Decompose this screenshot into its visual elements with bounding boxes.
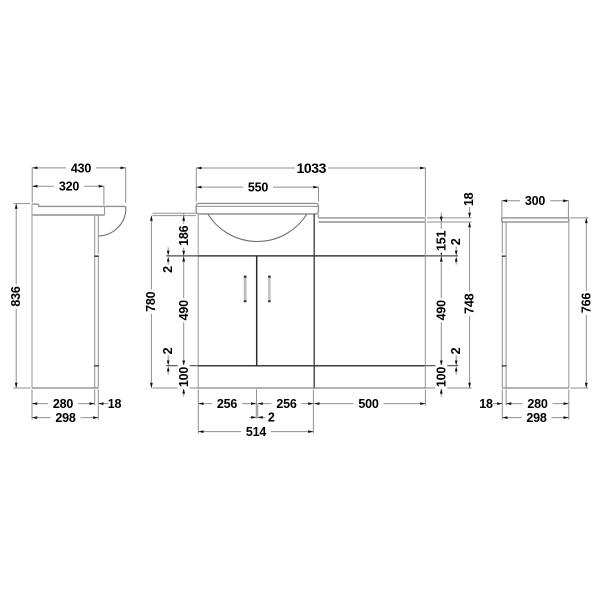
svg-text:186: 186 bbox=[177, 225, 191, 246]
svg-text:780: 780 bbox=[144, 291, 158, 312]
svg-text:256: 256 bbox=[276, 397, 297, 411]
svg-text:430: 430 bbox=[71, 161, 92, 175]
svg-text:2: 2 bbox=[161, 347, 175, 354]
svg-text:298: 298 bbox=[55, 411, 76, 425]
svg-text:490: 490 bbox=[435, 300, 449, 321]
svg-text:514: 514 bbox=[246, 425, 267, 439]
svg-text:100: 100 bbox=[435, 367, 449, 388]
svg-text:280: 280 bbox=[53, 397, 74, 411]
svg-text:1033: 1033 bbox=[297, 160, 327, 176]
svg-text:298: 298 bbox=[526, 411, 547, 425]
svg-text:2: 2 bbox=[268, 411, 275, 425]
svg-text:2: 2 bbox=[161, 266, 175, 273]
svg-text:490: 490 bbox=[177, 300, 191, 321]
svg-text:18: 18 bbox=[479, 397, 493, 411]
svg-text:100: 100 bbox=[177, 367, 191, 388]
svg-text:320: 320 bbox=[59, 180, 80, 194]
svg-text:18: 18 bbox=[108, 397, 122, 411]
svg-text:766: 766 bbox=[580, 293, 594, 314]
svg-text:151: 151 bbox=[435, 230, 449, 251]
svg-text:836: 836 bbox=[9, 286, 23, 307]
svg-text:500: 500 bbox=[358, 397, 379, 411]
svg-text:256: 256 bbox=[217, 397, 238, 411]
svg-text:550: 550 bbox=[248, 181, 269, 195]
svg-text:2: 2 bbox=[449, 238, 463, 245]
svg-text:2: 2 bbox=[449, 347, 463, 354]
svg-text:18: 18 bbox=[462, 192, 476, 206]
svg-text:280: 280 bbox=[527, 397, 548, 411]
svg-text:748: 748 bbox=[462, 293, 476, 314]
svg-text:300: 300 bbox=[525, 194, 546, 208]
